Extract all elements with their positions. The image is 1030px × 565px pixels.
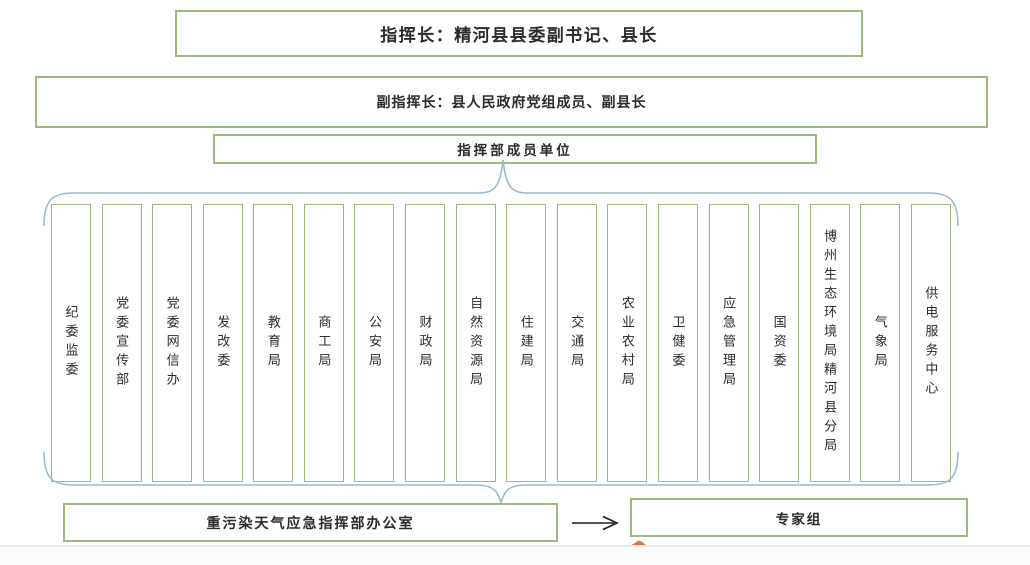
member-unit-label: 商工局 [317,315,330,372]
member-unit-label: 党委宣传部 [115,296,128,391]
member-unit-label: 气象局 [874,315,887,372]
office-box: 重污染天气应急指挥部办公室 [63,503,558,542]
org-chart-canvas: 指挥长：精河县县委副书记、县长 副指挥长：县人民政府党组成员、副县长 指挥部成员… [0,0,1030,565]
office-label: 重污染天气应急指挥部办公室 [207,513,415,533]
member-unit-label: 教育局 [267,315,280,372]
member-units-header-box: 指挥部成员单位 [213,134,817,164]
right-arrow-icon [572,517,617,530]
member-units-header-label: 指挥部成员单位 [457,139,573,159]
member-unit-label: 供电服务中心 [924,286,937,400]
member-unit-box: 博州生态环境局精河县分局 [810,204,850,482]
member-unit-label: 国资委 [773,315,786,372]
member-unit-label: 发改委 [216,315,229,372]
member-unit-label: 自然资源局 [469,296,482,391]
deputy-commander-label: 副指挥长：县人民政府党组成员、副县长 [377,92,647,112]
member-unit-box: 纪委监委 [51,204,91,482]
member-unit-box: 国资委 [759,204,799,482]
member-unit-label: 卫健委 [671,315,684,372]
member-units-row: 纪委监委党委宣传部党委网信办发改委教育局商工局公安局财政局自然资源局住建局交通局… [51,204,951,482]
commander-box: 指挥长：精河县县委副书记、县长 [175,10,863,57]
member-unit-label: 公安局 [368,315,381,372]
member-unit-box: 公安局 [354,204,394,482]
member-unit-box: 供电服务中心 [911,204,951,482]
member-unit-box: 党委宣传部 [102,204,142,482]
page-margin-strip [0,547,1030,565]
member-unit-label: 博州生态环境局精河县分局 [823,229,836,457]
member-unit-box: 自然资源局 [456,204,496,482]
member-unit-label: 住建局 [520,315,533,372]
member-unit-box: 卫健委 [658,204,698,482]
member-unit-label: 党委网信办 [166,296,179,391]
member-unit-box: 商工局 [304,204,344,482]
expert-group-label: 专家组 [776,508,823,528]
member-unit-label: 交通局 [570,315,583,372]
member-unit-box: 财政局 [405,204,445,482]
member-unit-box: 气象局 [860,204,900,482]
member-unit-box: 应急管理局 [709,204,749,482]
member-unit-box: 党委网信办 [152,204,192,482]
member-unit-box: 教育局 [253,204,293,482]
commander-label: 指挥长：精河县县委副书记、县长 [380,21,658,46]
member-unit-box: 交通局 [557,204,597,482]
member-unit-label: 应急管理局 [722,296,735,391]
member-unit-box: 农业农村局 [607,204,647,482]
member-unit-label: 纪委监委 [65,305,78,381]
member-unit-box: 住建局 [506,204,546,482]
member-unit-label: 财政局 [419,315,432,372]
expert-group-box: 专家组 [630,498,968,537]
member-unit-label: 农业农村局 [621,296,634,391]
deputy-commander-box: 副指挥长：县人民政府党组成员、副县长 [35,76,988,128]
member-unit-box: 发改委 [203,204,243,482]
